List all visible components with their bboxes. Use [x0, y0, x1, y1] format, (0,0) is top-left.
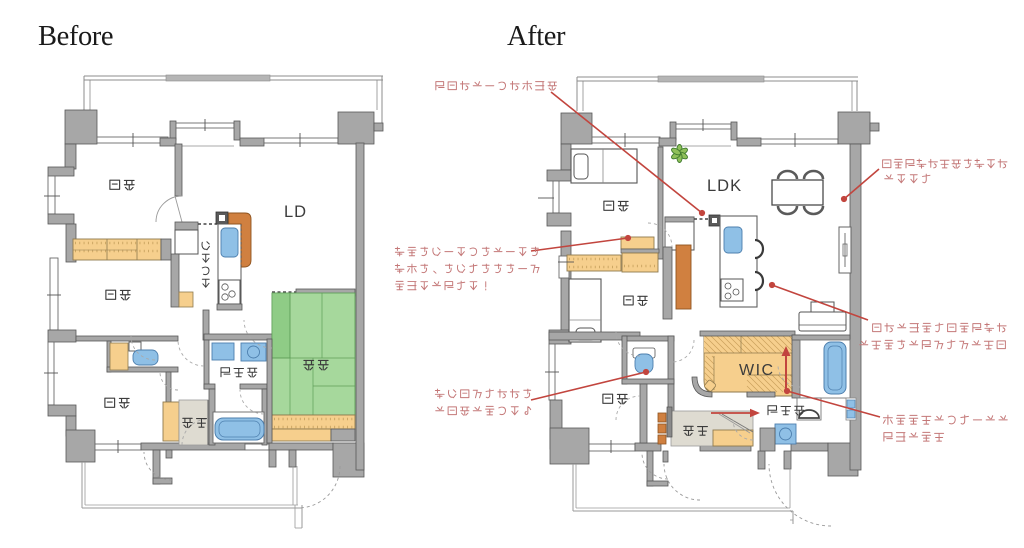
svg-text:After: After [507, 21, 566, 52]
svg-text:LD: LD [284, 203, 307, 221]
svg-text:LDK: LDK [707, 177, 742, 195]
svg-text:Before: Before [38, 21, 113, 52]
svg-text:WIC: WIC [739, 362, 775, 379]
